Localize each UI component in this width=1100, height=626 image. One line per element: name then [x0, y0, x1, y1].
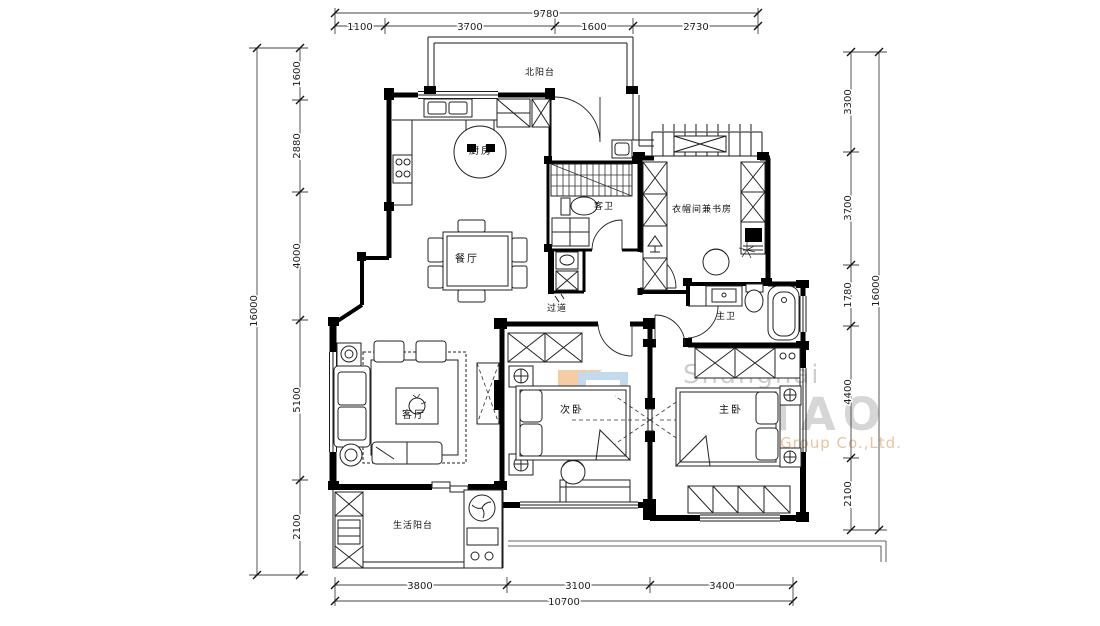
room-label-dining: 餐厅 [455, 252, 479, 265]
dim-left-total: 16000 [249, 295, 260, 327]
dimensions-right: 3300 3700 1780 4400 2100 16000 [843, 48, 887, 534]
dim-top-seg-3: 2730 [683, 22, 708, 33]
dimensions-top: 9780 1100 3700 1600 2730 [331, 8, 762, 34]
dim-top-seg-0: 1100 [347, 22, 372, 33]
dim-right-seg-1: 3700 [843, 195, 854, 220]
dim-right-seg-0: 3300 [843, 89, 854, 114]
dim-bottom-seg-1: 3100 [565, 581, 590, 592]
furniture [334, 99, 801, 568]
dim-left-seg-4: 2100 [292, 514, 303, 539]
guest-bath-fixtures [551, 164, 632, 290]
dim-right-seg-4: 2100 [843, 481, 854, 506]
dim-left-seg-0: 1600 [292, 61, 303, 86]
dim-left-seg-3: 5100 [292, 387, 303, 412]
second-bedroom-set [508, 333, 648, 502]
dim-bottom-total: 10700 [548, 597, 580, 608]
room-label-north-balcony: 北阳台 [525, 66, 555, 78]
dimensions-bottom: 3800 3100 3400 10700 [331, 577, 797, 608]
room-label-guest-bath: 客卫 [594, 200, 614, 212]
dim-right-seg-2: 1780 [843, 282, 854, 307]
dim-right-total: 16000 [871, 275, 882, 307]
dim-right-seg-3: 4400 [843, 379, 854, 404]
dim-top-seg-1: 3700 [457, 22, 482, 33]
dim-top-total: 9780 [533, 9, 558, 20]
dim-top-seg-2: 1600 [581, 22, 606, 33]
dim-left-seg-1: 2880 [292, 133, 303, 158]
dim-left-seg-2: 4000 [292, 243, 303, 268]
living-room-set [334, 341, 500, 466]
floor-plan-canvas: Shanghai BOTAO Decoration Group Co.,Ltd.… [0, 0, 1100, 626]
room-label-living: 客厅 [402, 408, 426, 421]
room-label-second-bedroom: 次卧 [560, 403, 584, 416]
room-label-study: 衣帽间兼书房 [672, 203, 732, 215]
room-label-kitchen: 厨房 [469, 144, 493, 157]
dim-bottom-seg-0: 3800 [407, 581, 432, 592]
room-label-master-bedroom: 主卧 [719, 403, 743, 416]
dim-bottom-seg-2: 3400 [709, 581, 734, 592]
room-label-master-bath: 主卫 [716, 310, 736, 322]
room-label-service-balcony: 生活阳台 [393, 519, 433, 531]
floor-plan-page: Shanghai BOTAO Decoration Group Co.,Ltd.… [0, 0, 1100, 626]
dimensions-left: 1600 2880 4000 5100 2100 16000 [249, 44, 308, 579]
room-label-corridor: 过道 [547, 302, 567, 314]
